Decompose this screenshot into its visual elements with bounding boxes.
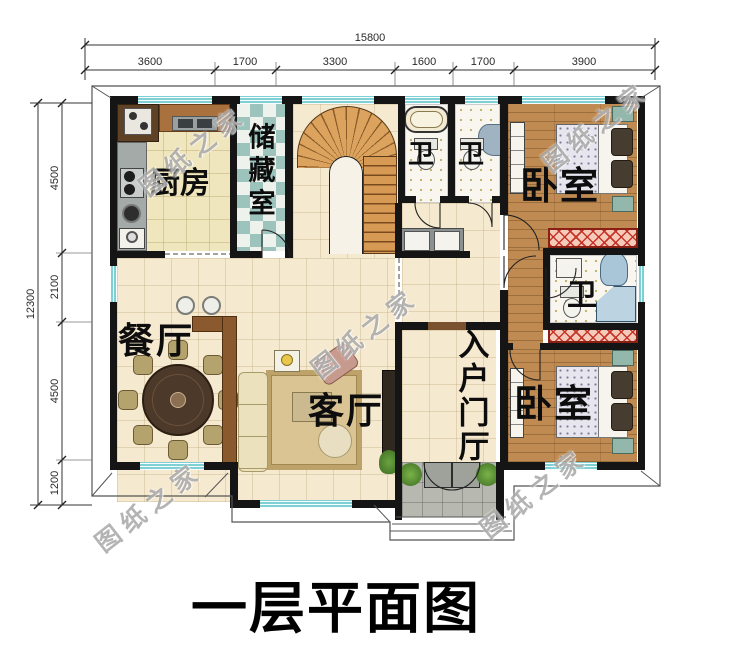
nightstand <box>612 196 634 212</box>
burner-icon <box>129 112 137 120</box>
wall-storage-right <box>285 96 293 258</box>
bar-stool <box>202 296 221 315</box>
wall-bath3-bottom <box>543 323 638 330</box>
wall-bath1-bottom <box>440 196 455 203</box>
washer-door-icon <box>126 231 138 243</box>
bar-counter-side <box>222 316 237 464</box>
room-label-bedroom-bottom: 卧室 <box>514 385 594 423</box>
dim-top-seg: 3300 <box>323 56 347 68</box>
kitchen-round-sink-icon <box>122 204 141 223</box>
wall-bedroom2-top <box>540 343 638 350</box>
page-title: 一层平面图 <box>191 564 481 645</box>
dining-chair <box>118 390 138 410</box>
staircase-landing-rail <box>329 156 363 254</box>
bed-pillow <box>611 371 633 399</box>
wardrobe-hatch-strip <box>548 228 638 248</box>
window-bath1-top <box>405 96 440 104</box>
vanity-sink-icon <box>434 231 460 251</box>
window-bedroom-top <box>522 96 605 104</box>
dining-chair <box>203 425 223 445</box>
cooktop-burner-icon <box>124 184 135 195</box>
sofa <box>238 372 268 472</box>
wall-entry-left <box>395 322 402 520</box>
window-storage-top <box>240 96 282 104</box>
wall-kitchen-bottom <box>110 251 165 258</box>
dim-top-seg: 3600 <box>138 56 162 68</box>
dim-top-seg: 3900 <box>572 56 596 68</box>
wall-bath2-bottom <box>455 196 469 203</box>
floor-plan-canvas: 15800 3600 1700 3300 1600 1700 3900 1230… <box>0 0 750 665</box>
room-label-entry-hall: 入户门厅 <box>455 328 486 464</box>
dining-chair <box>203 355 223 375</box>
wall-bath1-bottom <box>398 196 416 203</box>
dim-left-seg: 2100 <box>49 275 61 299</box>
dim-top-seg: 1700 <box>471 56 495 68</box>
table-lamp-icon <box>281 354 293 366</box>
pedestal-sink-icon <box>600 252 628 286</box>
wall-wing-left-upper <box>500 96 508 215</box>
room-label-living: 客厅 <box>308 394 384 430</box>
room-label-dining: 餐厅 <box>118 324 194 360</box>
staircase-treads <box>363 156 397 254</box>
window-kitchen-top <box>138 96 212 104</box>
dim-left-total: 12300 <box>25 289 37 320</box>
bed-pillow <box>611 403 633 431</box>
dim-top-total: 15800 <box>355 32 386 44</box>
wardrobe-hatch-strip <box>548 328 638 343</box>
wall-bedroom2-top-stub <box>503 343 513 350</box>
entry-door-divider <box>451 462 453 488</box>
wall-wing-left-lower <box>500 290 508 470</box>
room-label-bath3: 卫 <box>567 281 597 311</box>
bar-stool <box>176 296 195 315</box>
wall-niche-left <box>395 203 402 258</box>
corridor-floor <box>508 248 543 350</box>
bush-icon <box>399 463 422 486</box>
window-living-bottom <box>260 500 352 508</box>
window-bath2-top <box>465 96 498 104</box>
wall-storage-bottom <box>237 251 262 258</box>
dim-top-seg: 1700 <box>233 56 257 68</box>
bathtub-basin <box>410 111 443 128</box>
room-label-storage: 储藏室 <box>246 123 273 222</box>
dim-top-seg: 1600 <box>412 56 436 68</box>
washbasin-icon <box>556 258 582 278</box>
window-dining-left <box>110 266 117 302</box>
vanity-sink-icon <box>404 231 430 251</box>
dim-left-seg: 4500 <box>49 166 61 190</box>
bed-pillow <box>611 160 633 188</box>
burner-icon <box>140 122 148 130</box>
room-label-bath1: 卫 <box>408 142 434 168</box>
window-stairs-top <box>302 96 374 104</box>
wall-niche-bottom <box>395 251 470 258</box>
stove-icon <box>124 108 152 135</box>
wall-bath3-top <box>543 248 638 255</box>
dim-left-seg: 1200 <box>49 471 61 495</box>
nightstand <box>612 350 634 366</box>
window-bath3-right <box>638 266 645 302</box>
wall-bath1-left <box>398 96 405 203</box>
dining-chair <box>133 425 153 445</box>
wall-corridor-left <box>543 248 550 330</box>
nightstand <box>612 438 634 454</box>
dining-table-centerpiece <box>170 392 186 408</box>
wall-bath-mid <box>448 96 455 203</box>
room-label-bath2: 卫 <box>458 142 484 168</box>
dim-left-seg: 4500 <box>49 379 61 403</box>
